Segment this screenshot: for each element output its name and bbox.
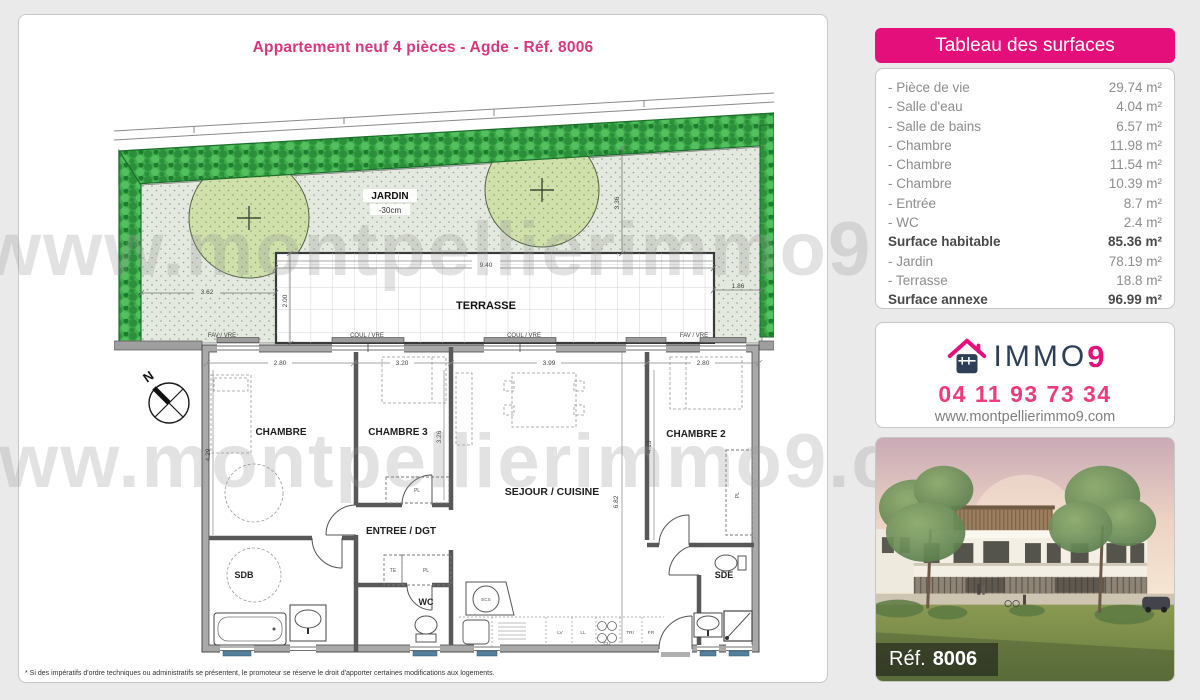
dim-3-62: 3.62 <box>201 289 214 296</box>
table-row-total: Surface habitable85.36 m² <box>888 232 1162 251</box>
tri-label: TRI <box>626 630 634 636</box>
surface-label: - Entrée <box>888 194 936 213</box>
chambre-label: CHAMBRE <box>255 427 306 438</box>
boundary-wall <box>759 341 774 350</box>
table-row: - Chambre10.39 m² <box>888 174 1162 193</box>
surfaces-header-label: Tableau des surfaces <box>935 35 1115 57</box>
table-row: - Entrée8.7 m² <box>888 194 1162 213</box>
brand-immo-text: IMMO <box>994 340 1088 374</box>
page-title: Appartement neuf 4 pièces - Agde - Réf. … <box>19 39 827 57</box>
dim-3-26: 3.26 <box>436 430 443 443</box>
ref-label: Réf. <box>889 648 926 671</box>
dim-4-13: 4.13 <box>646 440 653 453</box>
surface-value: 8.7 m² <box>1124 194 1162 213</box>
dim-3-36: 3.36 <box>614 196 621 209</box>
sdb-label: SDB <box>234 570 254 580</box>
right-column: Tableau des surfaces - Pièce de vie29.74… <box>875 0 1175 700</box>
surface-value: 11.54 m² <box>1110 155 1162 174</box>
ref-number: 8006 <box>933 648 978 671</box>
chambre2-label: CHAMBRE 2 <box>666 429 726 440</box>
surface-label: - Chambre <box>888 174 952 193</box>
website-link[interactable]: www.montpellierimmo9.com <box>876 409 1174 425</box>
surface-label: Surface habitable <box>888 232 1001 251</box>
surface-value: 29.74 m² <box>1109 78 1162 97</box>
table-row: - WC2.4 m² <box>888 213 1162 232</box>
chambre3-label: CHAMBRE 3 <box>368 427 428 438</box>
dim-2-80b: 2.80 <box>697 360 710 367</box>
ecs-label: ECS <box>481 597 490 602</box>
pl-label: PL <box>414 488 420 494</box>
surface-value: 4.04 m² <box>1116 97 1162 116</box>
table-row: - Pièce de vie29.74 m² <box>888 78 1162 97</box>
surface-value: 6.57 m² <box>1116 117 1162 136</box>
dim-1-86: 1.86 <box>732 283 745 290</box>
table-row: - Salle de bains6.57 m² <box>888 117 1162 136</box>
surface-value: 11.98 m² <box>1110 136 1162 155</box>
surface-value: 85.36 m² <box>1108 232 1162 251</box>
jardin-depth-label: -30cm <box>379 206 402 215</box>
fr-label: FR <box>648 630 655 636</box>
surface-value: 78.19 m² <box>1109 252 1162 271</box>
surface-value: 2.4 m² <box>1124 213 1162 232</box>
dim-4-29: 4.29 <box>205 448 212 461</box>
dim-3-20: 3.20 <box>396 360 409 367</box>
cu-label: CU <box>604 641 611 647</box>
surface-label: - Chambre <box>888 136 952 155</box>
surface-value: 96.99 m² <box>1108 290 1162 309</box>
surface-value: 18.8 m² <box>1116 271 1162 290</box>
wc-label: WC <box>419 597 434 607</box>
dim-3-99: 3.99 <box>543 360 556 367</box>
floorplan-drawing: 3.62 2.00 9.40 3.36 1.86 JARDIN -30cm TE… <box>114 85 774 665</box>
table-row: - Salle d'eau4.04 m² <box>888 97 1162 116</box>
sejour-label: SEJOUR / CUISINE <box>505 486 600 498</box>
surface-label: - WC <box>888 213 919 232</box>
table-row: - Jardin78.19 m² <box>888 252 1162 271</box>
surface-value: 10.39 m² <box>1109 174 1162 193</box>
sde-label: SDE <box>715 570 734 580</box>
pl-label: PL <box>423 568 429 574</box>
surface-label: - Pièce de vie <box>888 78 970 97</box>
agency-contact-card: IMMO9 04 11 93 73 34 www.montpellierimmo… <box>875 322 1175 428</box>
terrasse-label: TERRASSE <box>456 300 516 312</box>
table-row-total: Surface annexe96.99 m² <box>888 290 1162 309</box>
table-row: - Terrasse18.8 m² <box>888 271 1162 290</box>
table-row: - Chambre11.54 m² <box>888 155 1162 174</box>
surface-label: - Salle d'eau <box>888 97 963 116</box>
compass-n-label: N <box>140 368 156 386</box>
house-logo-icon <box>946 336 988 378</box>
compass-icon: N <box>140 368 189 423</box>
pl-label: PL <box>735 492 741 498</box>
brand-9-text: 9 <box>1087 339 1104 375</box>
ll-label: LL <box>580 630 586 636</box>
te-label: TE <box>390 568 397 574</box>
surface-label: - Jardin <box>888 252 933 271</box>
surfaces-header: Tableau des surfaces <box>875 28 1175 63</box>
boundary-wall <box>114 341 202 350</box>
surface-label: Surface annexe <box>888 290 988 309</box>
photo-ref-badge: Réf. 8006 <box>876 643 998 676</box>
dim-6-82: 6.82 <box>613 495 620 508</box>
surface-label: - Chambre <box>888 155 952 174</box>
lv-label: LV <box>557 630 563 636</box>
table-row: - Chambre11.98 m² <box>888 136 1162 155</box>
floorplan-card: Appartement neuf 4 pièces - Agde - Réf. … <box>18 14 828 683</box>
page: Appartement neuf 4 pièces - Agde - Réf. … <box>0 0 1200 700</box>
surface-label: - Terrasse <box>888 271 948 290</box>
disclaimer-text: * Si des impératifs d'ordre techniques o… <box>25 670 495 677</box>
dim-2-00: 2.00 <box>282 294 289 307</box>
phone-link[interactable]: 04 11 93 73 34 <box>876 381 1174 408</box>
surfaces-table: - Pièce de vie29.74 m² - Salle d'eau4.04… <box>875 68 1175 309</box>
entree-label: ENTREE / DGT <box>366 526 436 537</box>
dim-2-80a: 2.80 <box>274 360 287 367</box>
jardin-label: JARDIN <box>371 191 408 202</box>
agency-logo: IMMO9 <box>876 335 1174 379</box>
surface-label: - Salle de bains <box>888 117 981 136</box>
building-photo-card[interactable]: Réf. 8006 <box>875 437 1175 682</box>
dim-9-40: 9.40 <box>480 262 493 269</box>
